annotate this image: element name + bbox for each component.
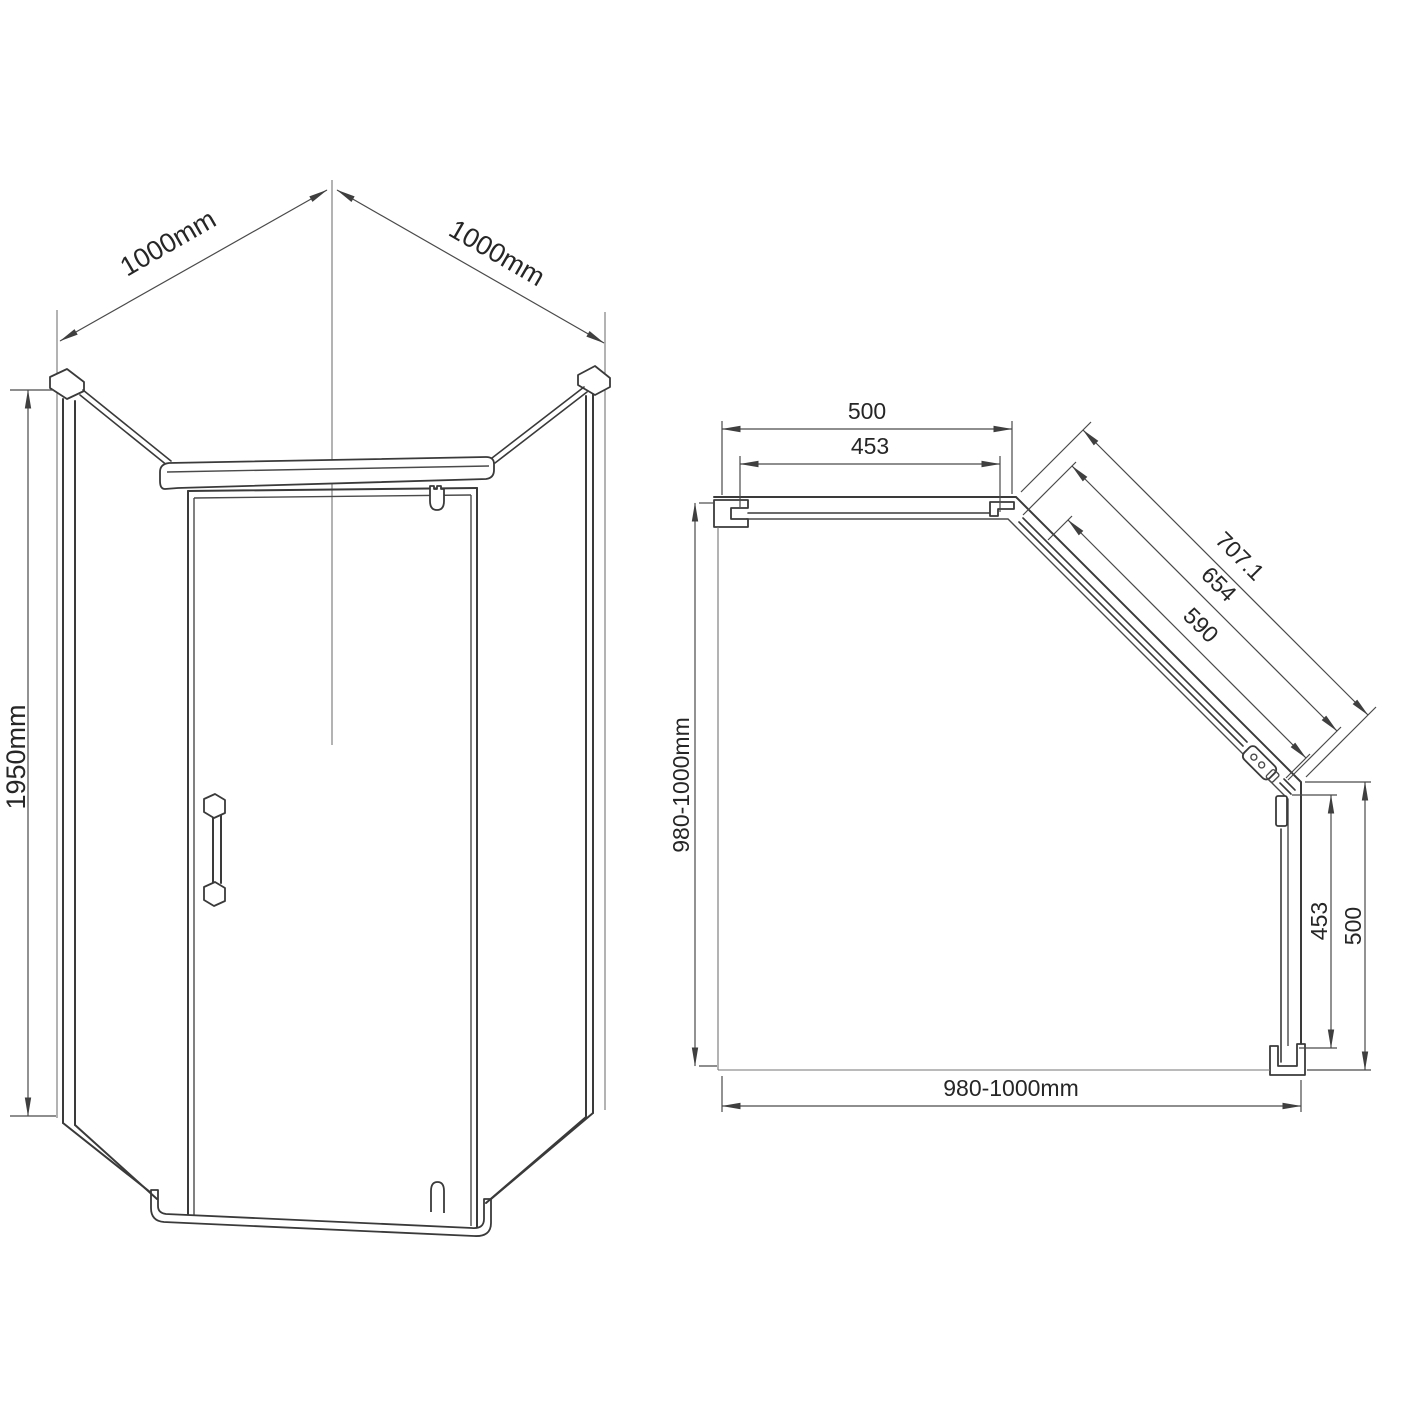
handle-top-mount (204, 794, 225, 818)
dim-ext (1023, 462, 1076, 515)
dim-label-width-left: 1000mm (115, 204, 221, 283)
front-view: 1000mm 1000mm 1950mm (1, 180, 610, 1236)
dim-line-diag-mid (1072, 466, 1337, 731)
dim-label-right-outer: 500 (1340, 907, 1366, 945)
pivot-bracket (1276, 796, 1287, 826)
left-glass-edge (80, 395, 168, 466)
wall-profile-bottom-right (1270, 1044, 1305, 1075)
door-stop-bracket (990, 502, 1014, 516)
door-handle (204, 794, 225, 906)
header-rail (160, 457, 494, 489)
dim-label-height: 1950mm (1, 704, 31, 809)
left-bottom-glass-edge (75, 1125, 157, 1199)
front-structure (50, 180, 610, 1236)
plan-door-hinge (1241, 744, 1282, 785)
wall-profile-top-left (714, 500, 748, 527)
dim-label-width-right: 1000mm (444, 214, 550, 293)
dim-line-diag-inner (1068, 520, 1306, 758)
drawing-svg: 1000mm 1000mm 1950mm (0, 0, 1403, 1403)
handle-bottom-mount (204, 882, 225, 906)
plan-dimensions: 500 453 707.1 654 590 980-1000 (668, 398, 1376, 1112)
plan-view: 500 453 707.1 654 590 980-1000 (668, 398, 1376, 1112)
dim-line-width-right (337, 190, 604, 343)
left-glass-edge (83, 390, 171, 461)
dim-ext (1048, 516, 1072, 540)
dim-label-left: 980-1000mm (668, 717, 694, 853)
right-glass-edge (492, 387, 584, 458)
door-top-hinge (430, 486, 444, 510)
plan-inner-wall (746, 519, 1288, 1046)
door-bottom-hinge (431, 1182, 444, 1213)
dim-label-diag-inner: 590 (1178, 602, 1224, 648)
front-dimensions: 1000mm 1000mm 1950mm (1, 190, 604, 1116)
dim-label-top-outer: 500 (848, 398, 886, 424)
shower-enclosure-technical-drawing: 1000mm 1000mm 1950mm (0, 0, 1403, 1403)
left-corner-cap (50, 369, 84, 399)
dim-label-right-inner: 453 (1306, 902, 1332, 940)
dim-ext (1288, 727, 1341, 780)
right-glass-edge (495, 392, 587, 463)
dim-label-bottom: 980-1000mm (943, 1075, 1079, 1101)
dim-label-top-inner: 453 (851, 433, 889, 459)
right-bottom-glass-edge (486, 1117, 586, 1203)
dim-ext (1306, 707, 1376, 777)
